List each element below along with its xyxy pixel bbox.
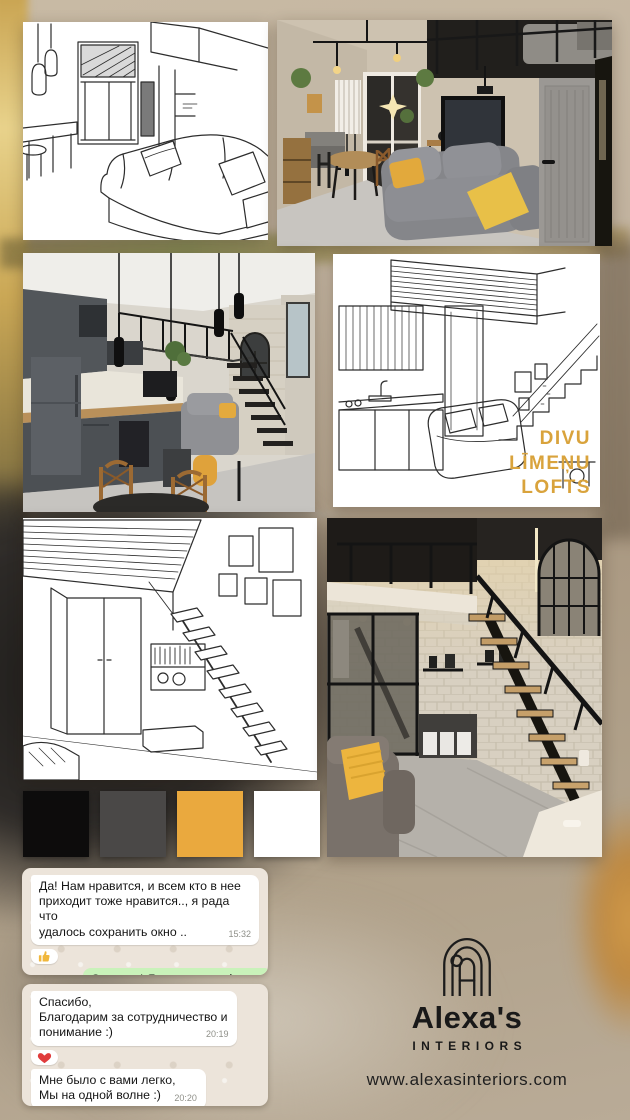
chat-bubble-reaction [31, 949, 58, 964]
palette-swatch-yellow [177, 791, 243, 857]
arch-monogram-icon [440, 936, 494, 996]
chat-bubble-incoming: Мне было с вами легко, Мы на одной волне… [31, 1069, 206, 1106]
chat-bubble-outgoing: Отлично! Я очень рада :) 15:36 [83, 968, 268, 975]
palette-swatch-white [254, 791, 320, 857]
background-right-shadow [598, 240, 630, 540]
tile-sketch-kitchen-loft: DIVU LĪMEŅU LOFTS [333, 254, 600, 507]
tile-photo-kitchen-loft [23, 253, 315, 512]
palette-swatch-gray [100, 791, 166, 857]
tile-photo-loft-living-room [277, 20, 612, 246]
brand-block: Alexa's INTERIORS www.alexasinteriors.co… [352, 936, 582, 1090]
brand-name: Alexa's [352, 1002, 582, 1033]
brand-tagline: INTERIORS [352, 1039, 582, 1053]
chat-message-text: Спасибо, Благодарим за сотрудничество и … [39, 995, 228, 1039]
chat-message-time: 20:19 [206, 1027, 229, 1042]
social-post-canvas: DIVU LĪMEŅU LOFTS [0, 0, 630, 1120]
brand-website: www.alexasinteriors.com [352, 1070, 582, 1090]
chat-message-text: Мне было с вами легко, Мы на одной волне… [39, 1073, 176, 1102]
chat-message-time: 15:32 [228, 927, 251, 942]
palette-swatch-black [23, 791, 89, 857]
chat-bubble-incoming: Да! Нам нравится, и всем кто в нее прихо… [31, 875, 259, 945]
chat-message-time: 15:36 [239, 974, 262, 975]
color-palette [23, 791, 320, 857]
tile-photo-loft-staircase [327, 518, 602, 857]
tile-sketch-stair-room [23, 518, 317, 780]
tile-sketch-living-room [23, 22, 268, 240]
chat-message-time: 20:20 [174, 1091, 197, 1106]
thumbs-up-icon [37, 949, 52, 964]
chat-screenshot-1: Да! Нам нравится, и всем кто в нее прихо… [22, 868, 268, 975]
chat-message-text: Да! Нам нравится, и всем кто в нее прихо… [39, 879, 241, 939]
loft-caption: DIVU LĪMEŅU LOFTS [509, 427, 591, 501]
chat-bubble-incoming: Спасибо, Благодарим за сотрудничество и … [31, 991, 237, 1046]
chat-screenshot-2: Спасибо, Благодарим за сотрудничество и … [22, 984, 268, 1106]
heart-icon [37, 1050, 52, 1065]
chat-bubble-reaction [31, 1050, 58, 1065]
chat-message-text: Отлично! Я очень рада :) [91, 972, 234, 975]
